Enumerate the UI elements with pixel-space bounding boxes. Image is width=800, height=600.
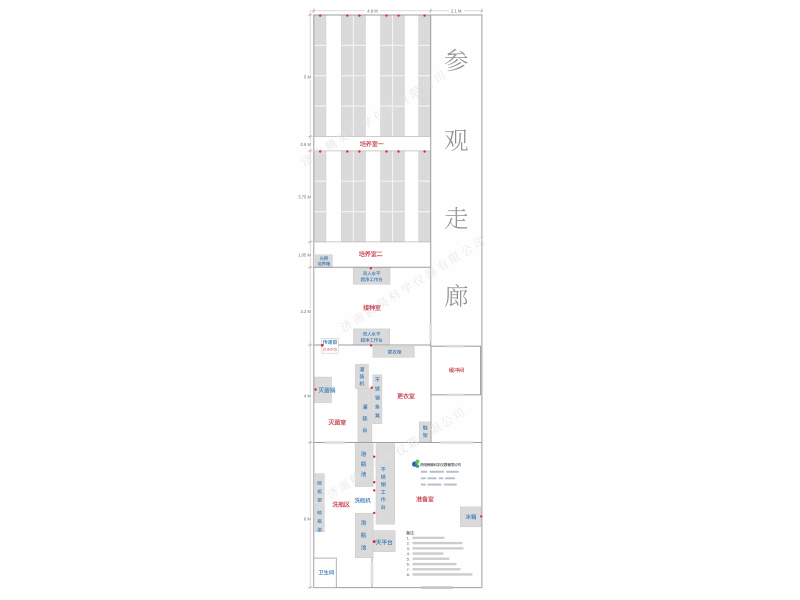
svg-text::: : bbox=[414, 530, 415, 535]
svg-text:4 M: 4 M bbox=[304, 394, 311, 399]
svg-text:(0.6x0.6): (0.6x0.6) bbox=[323, 348, 336, 352]
svg-text:1.05 M: 1.05 M bbox=[298, 253, 311, 258]
svg-text:2.: 2. bbox=[407, 541, 410, 546]
svg-text:3.75 M: 3.75 M bbox=[298, 195, 311, 200]
svg-text:8.: 8. bbox=[407, 572, 410, 577]
svg-text:4.8 M: 4.8 M bbox=[367, 8, 378, 13]
svg-text:5 M: 5 M bbox=[304, 75, 311, 80]
svg-text:0.6 M: 0.6 M bbox=[301, 142, 312, 147]
svg-text:2.1 M: 2.1 M bbox=[451, 8, 462, 13]
svg-text:6.: 6. bbox=[407, 562, 410, 567]
svg-text:3.2 M: 3.2 M bbox=[301, 309, 312, 314]
svg-text:6 M: 6 M bbox=[304, 517, 311, 522]
